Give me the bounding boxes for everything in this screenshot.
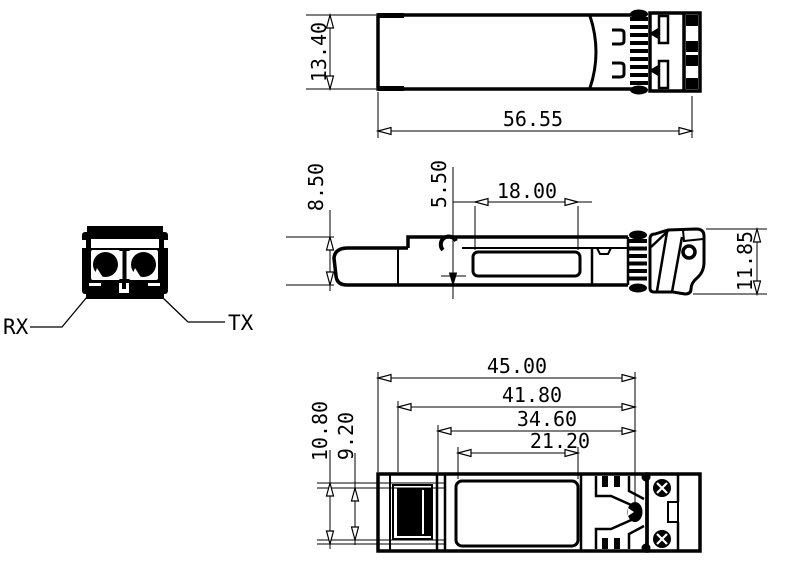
tx-label: TX xyxy=(228,311,254,335)
dim-label-10-80: 10.80 xyxy=(308,401,332,461)
dim-label-18-00: 18.00 xyxy=(497,179,557,203)
top-view-bezel-lip-top xyxy=(378,13,404,18)
rx-label: RX xyxy=(3,315,29,339)
dim-label-34-60: 34.60 xyxy=(517,407,577,431)
dim-label-11-85: 11.85 xyxy=(733,231,757,291)
front-view-bottom-lip xyxy=(86,293,164,299)
dim-label-21-20: 21.20 xyxy=(530,429,590,453)
dim-label-8-50: 8.50 xyxy=(304,163,328,211)
side-view-bail-pivot xyxy=(683,246,695,258)
dim-label-41-80: 41.80 xyxy=(502,383,562,407)
dim-label-13-40: 13.40 xyxy=(307,22,331,82)
front-view-top-band xyxy=(91,239,159,248)
bottom-view-connector-opening xyxy=(397,488,431,536)
dim-label-5-50: 5.50 xyxy=(427,160,451,208)
drawing-canvas: 13.40 56.55 xyxy=(0,0,791,566)
top-view-bezel-lip-bottom xyxy=(378,86,404,91)
dim-label-56-55: 56.55 xyxy=(503,107,563,131)
dim-label-9-20: 9.20 xyxy=(334,412,358,460)
dim-label-45-00: 45.00 xyxy=(487,354,547,378)
